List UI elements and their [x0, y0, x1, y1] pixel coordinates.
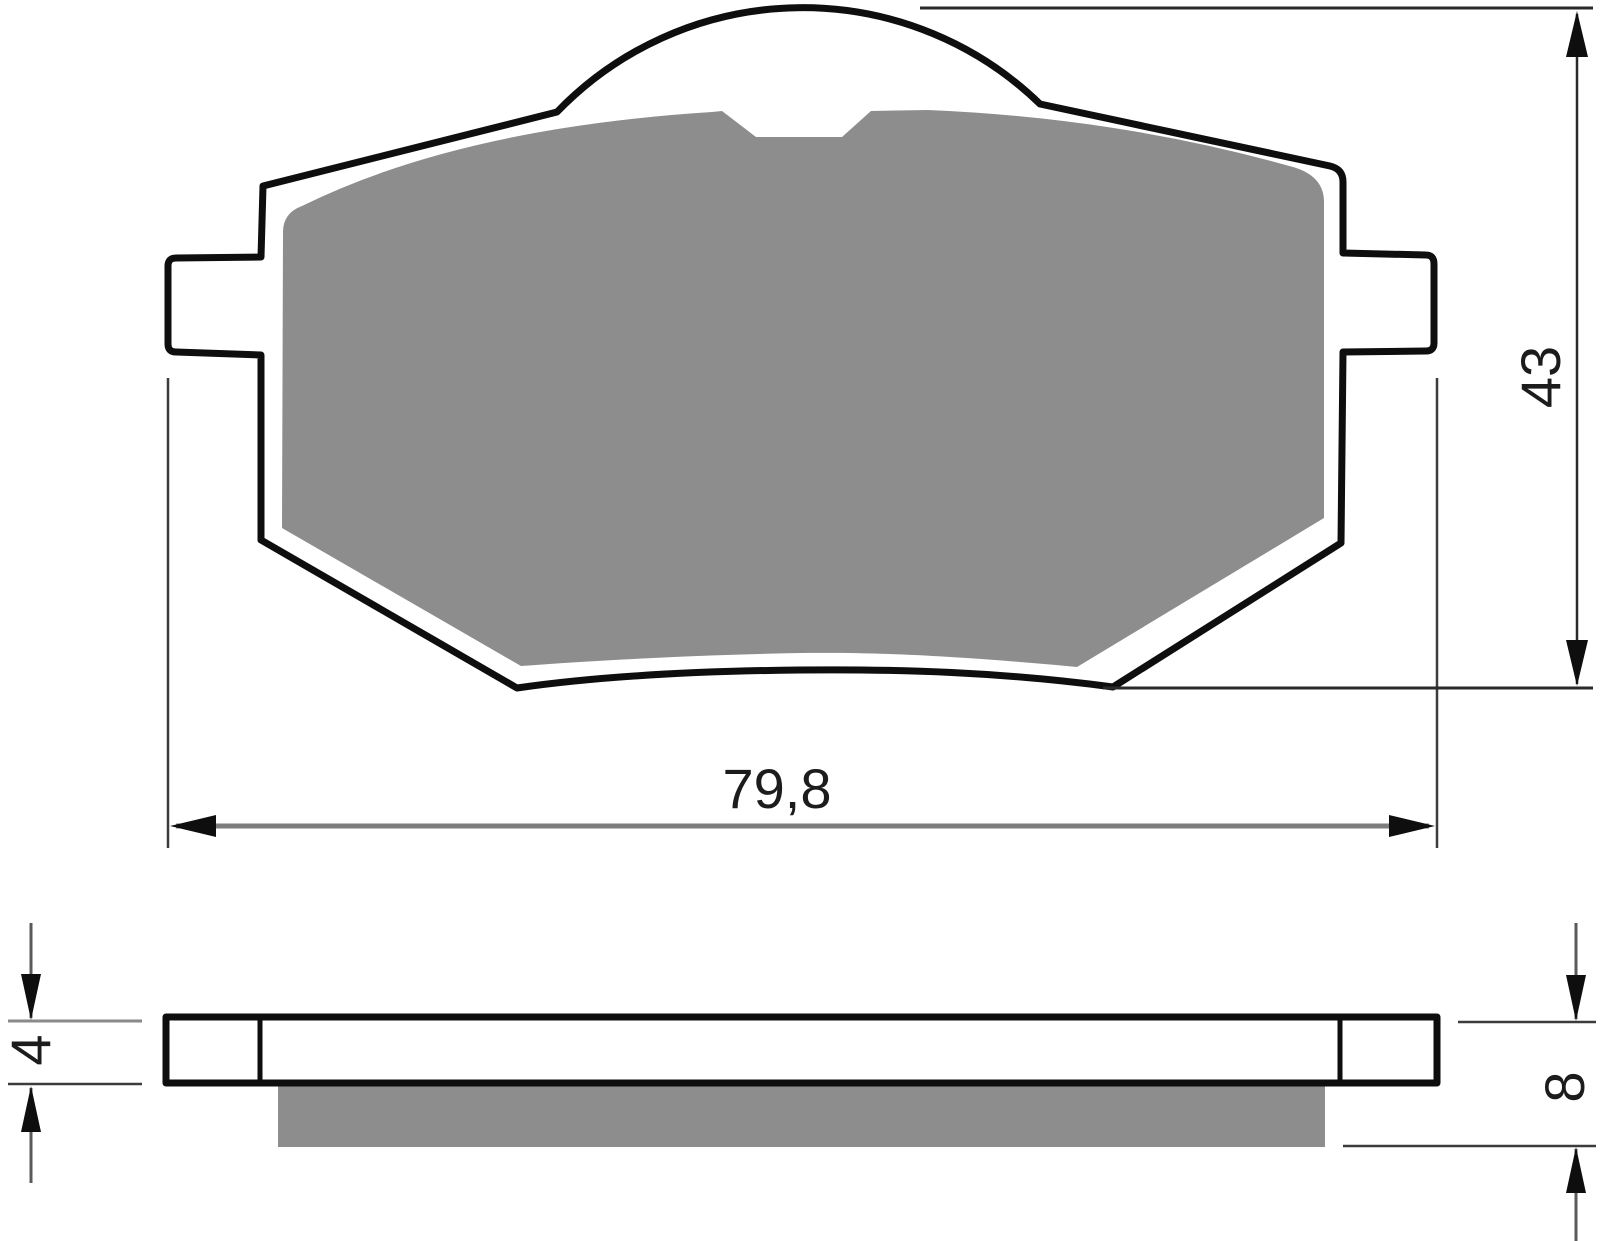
side-backing-plate: [166, 1017, 1437, 1083]
height-arrow-bottom: [1566, 640, 1588, 686]
top-view: [168, 8, 1434, 688]
total-arrow-up: [1566, 1147, 1586, 1193]
total-arrow-down: [1566, 975, 1586, 1021]
height-dimension-label: 43: [1509, 346, 1572, 408]
friction-material-side: [278, 1083, 1325, 1147]
width-dimension-label: 79,8: [723, 757, 832, 820]
side-view: [166, 1017, 1437, 1147]
dimension-backing-thickness: 4: [0, 923, 142, 1183]
friction-material-top: [282, 110, 1324, 667]
backing-arrow-up: [21, 1086, 41, 1132]
backing-thickness-label: 4: [0, 1034, 62, 1065]
drawing-page: 79,8 43 4 8: [0, 0, 1600, 1241]
width-arrow-right: [1389, 815, 1435, 837]
backing-arrow-down: [21, 974, 41, 1020]
height-arrow-top: [1566, 11, 1588, 57]
total-thickness-label: 8: [1533, 1071, 1596, 1102]
technical-drawing-canvas: 79,8 43 4 8: [0, 0, 1600, 1241]
width-arrow-left: [170, 815, 216, 837]
